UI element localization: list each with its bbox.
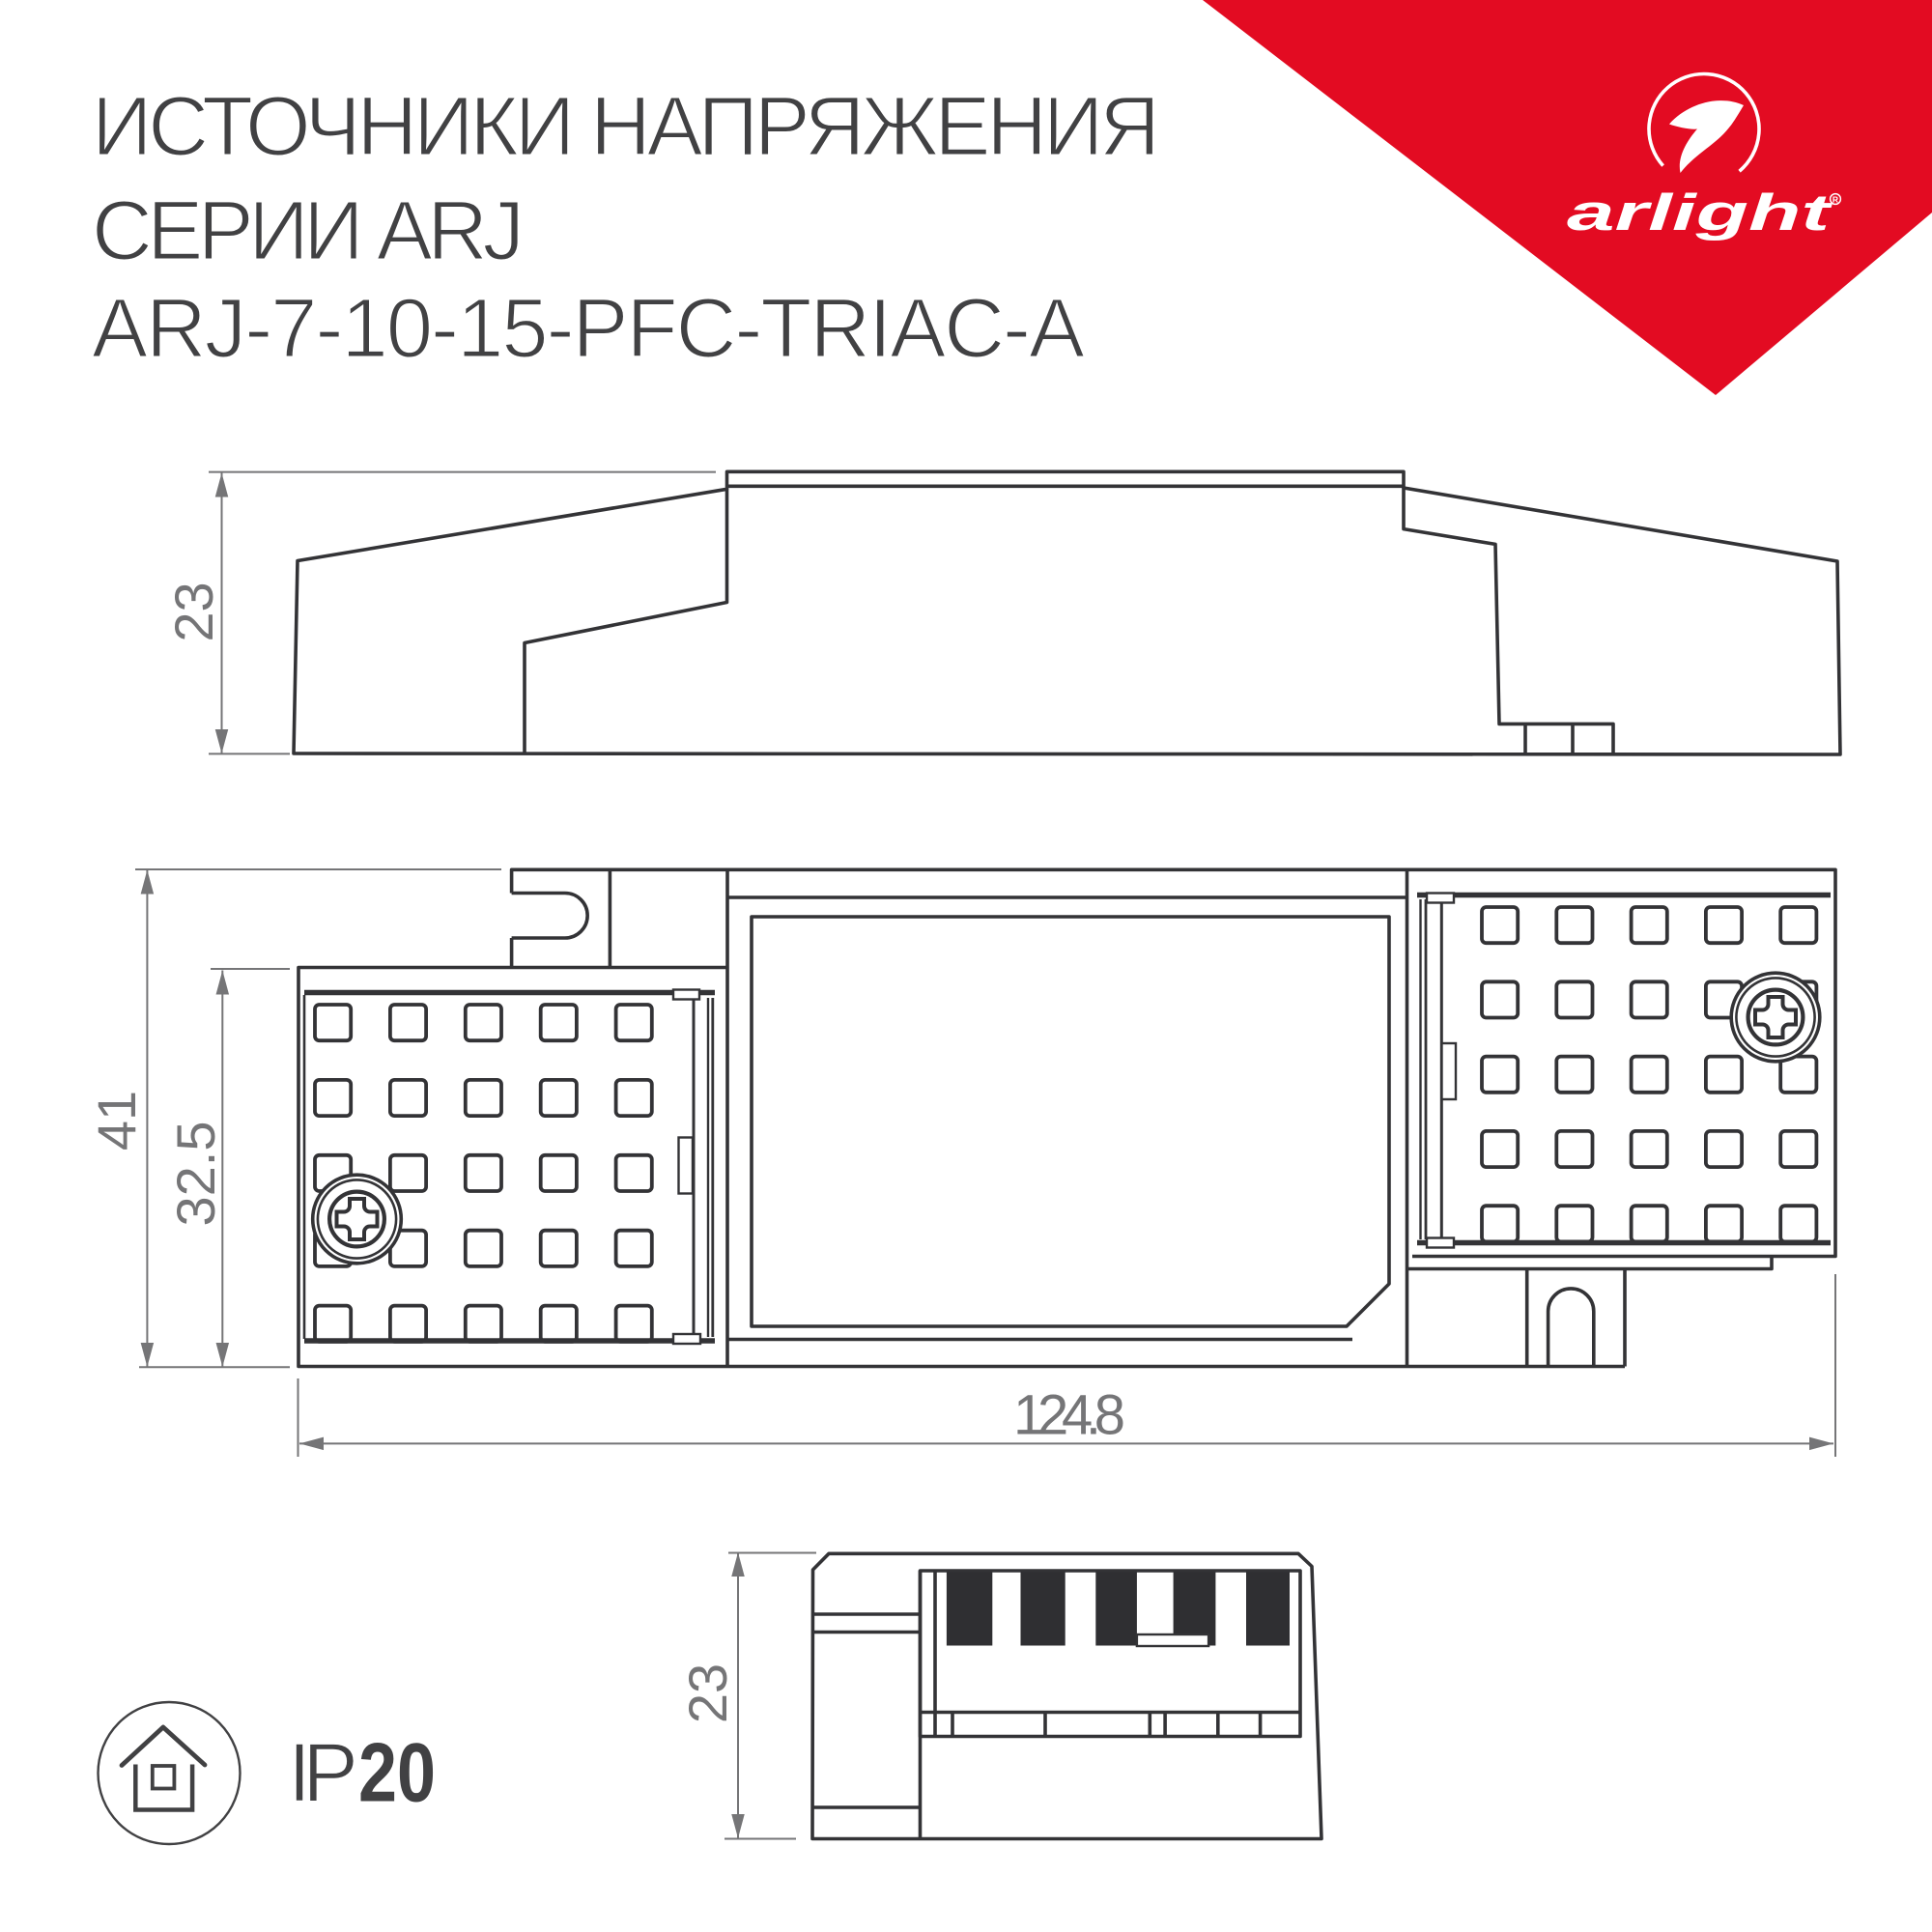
svg-text:IP: IP: [288, 1727, 358, 1820]
svg-text:41: 41: [86, 1091, 147, 1151]
svg-text:R: R: [1833, 194, 1838, 204]
svg-text:124.8: 124.8: [1013, 1384, 1125, 1447]
svg-text:arlight: arlight: [1567, 185, 1833, 241]
svg-text:32.5: 32.5: [165, 1122, 226, 1227]
svg-text:23: 23: [163, 582, 224, 641]
svg-text:ARJ-7-10-15-PFC-TRIAC-A: ARJ-7-10-15-PFC-TRIAC-A: [92, 282, 1085, 376]
svg-text:20: 20: [358, 1727, 436, 1820]
svg-text:23: 23: [677, 1663, 738, 1723]
svg-text:СЕРИИ ARJ: СЕРИИ ARJ: [92, 185, 525, 278]
svg-text:ИСТОЧНИКИ НАПРЯЖЕНИЯ: ИСТОЧНИКИ НАПРЯЖЕНИЯ: [92, 80, 1160, 174]
